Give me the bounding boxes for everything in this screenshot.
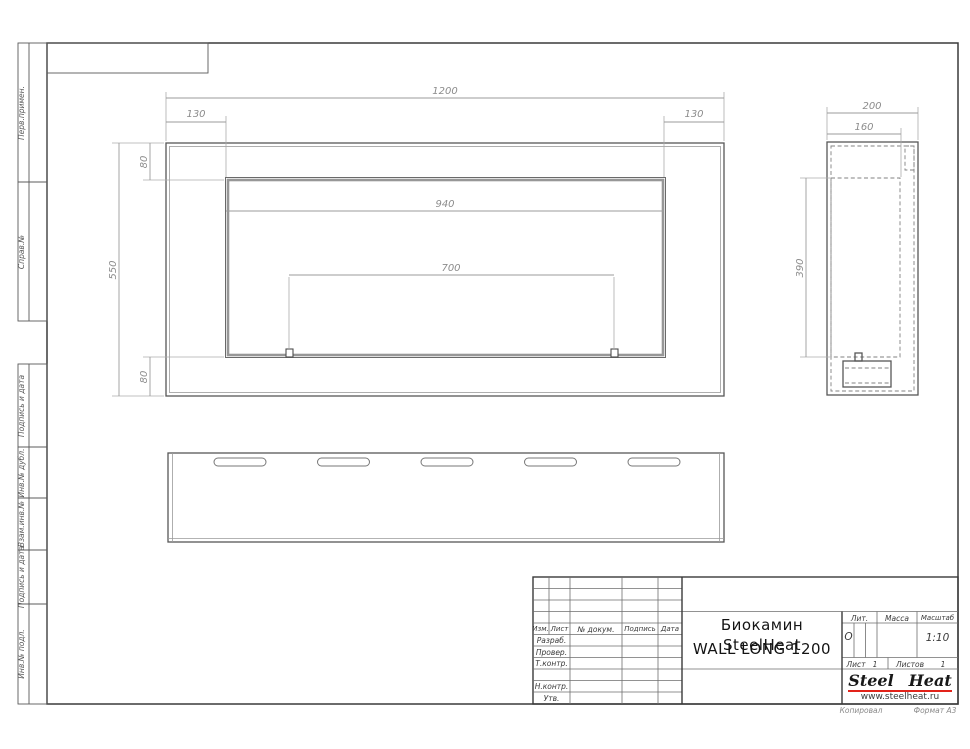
dim-80-bottom: 80 — [139, 371, 150, 384]
vent-slot — [628, 458, 680, 466]
dim-130-right: 130 — [684, 109, 703, 120]
titleblock-col-list: Лист — [549, 624, 570, 635]
titleblock-col-dokum: № докум. — [570, 624, 622, 635]
titleblock-col-data: Дата — [658, 624, 682, 635]
titleblock-lit-value: О — [842, 631, 855, 643]
titleblock-lit-label: Лит. — [842, 613, 877, 624]
dim-940: 940 — [435, 199, 454, 210]
titleblock-row-prover: Провер. — [533, 647, 570, 658]
vent-slot — [421, 458, 473, 466]
titleblock-masshtab-value: 1:10 — [917, 632, 958, 644]
titleblock-massa-label: Масса — [877, 613, 917, 624]
titleblock-col-izm: Изм. — [531, 624, 550, 635]
vent-slot — [525, 458, 577, 466]
format-label: Формат А3 — [900, 706, 970, 715]
side-view-inner-hidden — [831, 178, 900, 357]
dimensions: 1200 130 130 940 700 550 80 80 200 160 3… — [108, 86, 918, 396]
dim-550: 550 — [108, 260, 119, 279]
margin-label-inv-podl: Инв.№ подл. — [17, 594, 31, 714]
steelheat-logo: Steel Heat www.steelheat.ru — [843, 670, 957, 703]
vent-slot — [318, 458, 370, 466]
dim-80-top: 80 — [139, 156, 150, 169]
document-title-line2: WALL LONG 1200 — [684, 639, 840, 659]
dim-390: 390 — [795, 258, 806, 277]
logo-heat-text: Heat — [909, 671, 952, 690]
dim-1200: 1200 — [432, 86, 457, 97]
flame-icon — [895, 672, 908, 689]
dim-160: 160 — [854, 122, 873, 133]
kopiroval-label: Копировал — [826, 706, 896, 715]
dim-700: 700 — [441, 263, 460, 274]
dim-130-left: 130 — [186, 109, 205, 120]
titleblock-col-podpis: Подпись — [622, 624, 658, 635]
titleblock-listov-value: 1 — [932, 659, 954, 670]
logo-url: www.steelheat.ru — [861, 692, 939, 702]
margin-label-perv-primen: Перв.примен. — [17, 53, 31, 173]
titleblock-list-value: 1 — [866, 659, 884, 670]
logo-steel-text: Steel — [848, 671, 893, 690]
side-view — [827, 142, 918, 395]
top-left-stamp-box — [47, 43, 208, 73]
burner-mount-right — [611, 349, 618, 357]
titleblock-row-tkontr: Т.контр. — [533, 658, 570, 669]
titleblock-masshtab-label: Масштаб — [917, 613, 958, 624]
margin-label-sprav-no: Справ.№ — [17, 192, 31, 312]
side-view-bracket-hidden — [905, 146, 914, 170]
titleblock-row-razrab: Разраб. — [533, 635, 570, 646]
titleblock-row-nkontr: Н.контр. — [533, 681, 570, 692]
burner-mount-left — [286, 349, 293, 357]
titleblock-row-utv: Утв. — [533, 693, 570, 704]
vent-slot — [214, 458, 266, 466]
sheet-frame — [47, 43, 958, 704]
dim-200: 200 — [862, 101, 881, 112]
bottom-view — [168, 453, 724, 542]
titleblock-listov-label: Листов — [888, 659, 932, 670]
drawing-sheet: 1200 130 130 940 700 550 80 80 200 160 3… — [0, 0, 970, 749]
